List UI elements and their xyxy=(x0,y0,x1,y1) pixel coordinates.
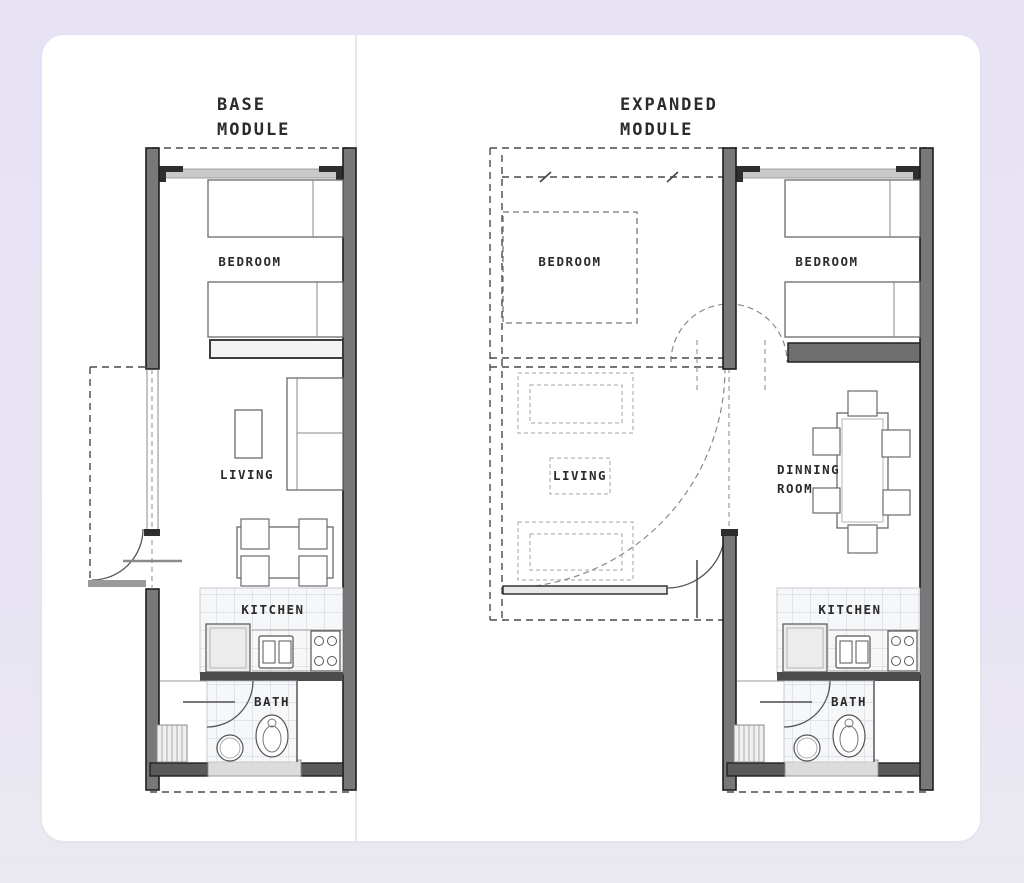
base-bath-label: BATH xyxy=(254,694,290,709)
dining-room-label-line2: ROOM xyxy=(777,481,813,496)
expanded-module-title-line2: MODULE xyxy=(620,120,693,140)
base-module-plan: BASE MODULE xyxy=(88,95,356,792)
expansion-floor-edge xyxy=(503,586,667,594)
expansion-ghost-furniture-top xyxy=(518,373,633,433)
base-window xyxy=(159,169,343,178)
expansion-living-label: LIVING xyxy=(553,468,607,483)
base-bed xyxy=(208,180,343,237)
floorplan-drawing: BASE MODULE xyxy=(0,0,1024,883)
expanded-kitchen-bath-wall xyxy=(777,672,920,681)
expanded-module-title-line1: EXPANDED xyxy=(620,95,718,115)
bedroom-partition-wall xyxy=(788,343,920,362)
base-sofa xyxy=(287,378,343,490)
expanded-bath-label: BATH xyxy=(831,694,867,709)
expanded-kitchen-label: KITCHEN xyxy=(818,602,881,617)
base-dining-set xyxy=(237,519,333,586)
base-bed-2 xyxy=(208,282,343,358)
expanded-entry-door xyxy=(667,530,725,618)
base-kitchen-label: KITCHEN xyxy=(241,602,304,617)
expanded-bedroom-label: BEDROOM xyxy=(795,254,858,269)
expansion-bedroom-label: BEDROOM xyxy=(538,254,601,269)
base-entry-steps xyxy=(157,725,187,762)
base-entry-door xyxy=(92,369,182,589)
base-module-title-line2: MODULE xyxy=(217,120,290,140)
base-living-label: LIVING xyxy=(220,467,274,482)
expanded-bed xyxy=(785,180,920,237)
expanded-bed-2 xyxy=(785,282,920,337)
base-side-table xyxy=(235,410,262,458)
expanded-module-plan: EXPANDED MODULE BEDROOM LIVING xyxy=(490,95,933,792)
expanded-entry-steps xyxy=(734,725,764,762)
base-kitchen-bath-wall xyxy=(200,672,343,681)
dining-room-label-line1: DINNING xyxy=(777,462,840,477)
base-bedroom-label: BEDROOM xyxy=(218,254,281,269)
base-module-title-line1: BASE xyxy=(217,95,266,115)
expansion-ghost-furniture-bottom xyxy=(518,522,633,580)
expansion-swing-arc xyxy=(505,368,725,588)
expanded-window xyxy=(736,169,920,178)
